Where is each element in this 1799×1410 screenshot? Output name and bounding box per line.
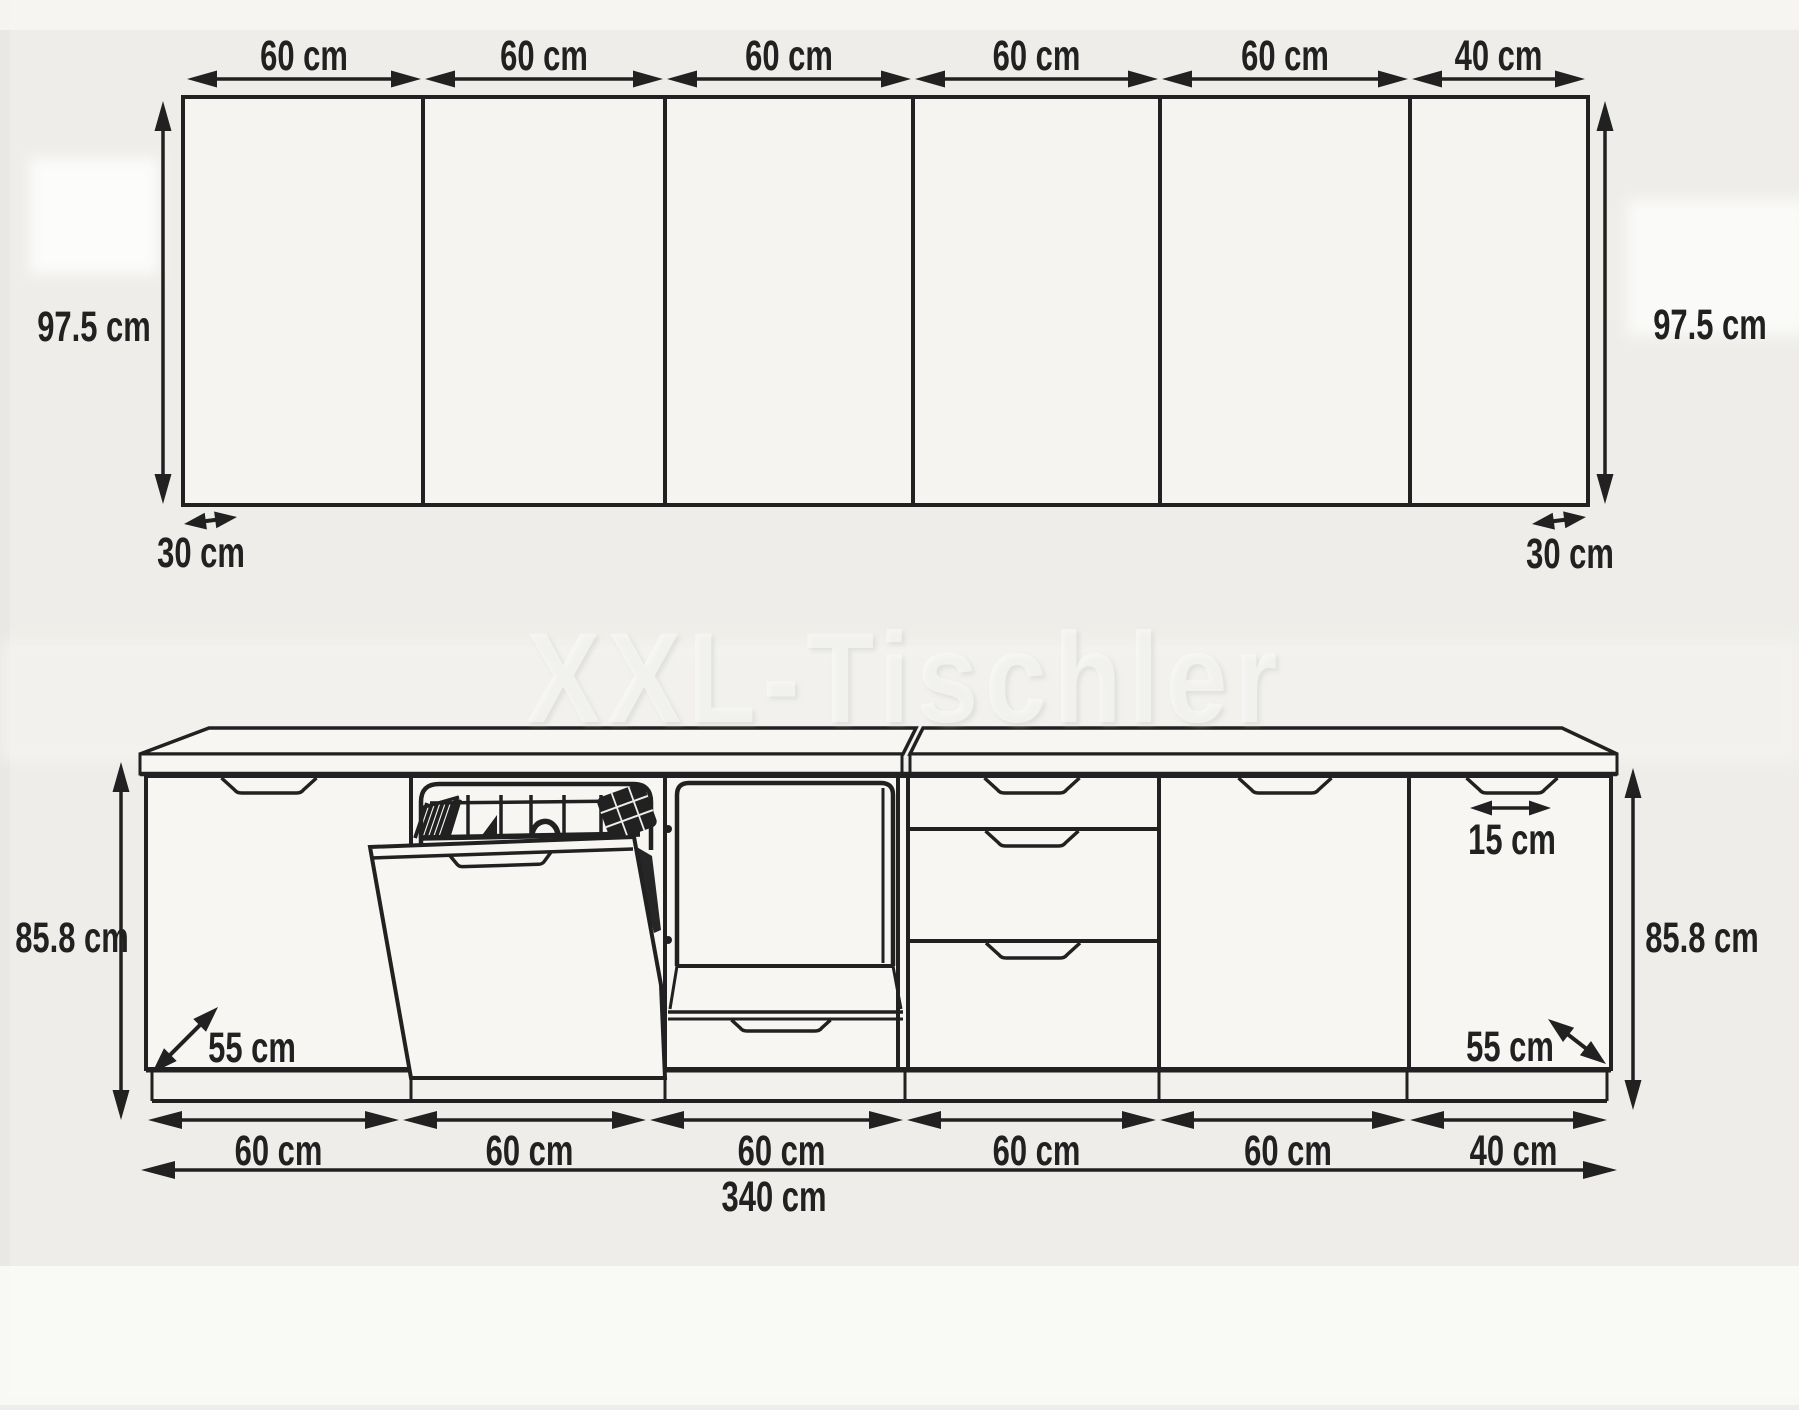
svg-text:40 cm: 40 cm bbox=[1470, 1126, 1558, 1174]
svg-text:15 cm: 15 cm bbox=[1468, 815, 1556, 863]
svg-text:30 cm: 30 cm bbox=[1526, 529, 1614, 577]
svg-text:85.8 cm: 85.8 cm bbox=[1645, 913, 1759, 961]
svg-text:60 cm: 60 cm bbox=[235, 1126, 323, 1174]
svg-text:60 cm: 60 cm bbox=[486, 1126, 574, 1174]
svg-text:97.5 cm: 97.5 cm bbox=[37, 302, 151, 350]
svg-text:55 cm: 55 cm bbox=[208, 1023, 296, 1071]
svg-text:55 cm: 55 cm bbox=[1466, 1022, 1554, 1070]
svg-text:340 cm: 340 cm bbox=[722, 1172, 827, 1220]
svg-text:60 cm: 60 cm bbox=[1241, 31, 1329, 79]
svg-text:60 cm: 60 cm bbox=[738, 1126, 826, 1174]
svg-text:60 cm: 60 cm bbox=[993, 1126, 1081, 1174]
svg-text:60 cm: 60 cm bbox=[745, 31, 833, 79]
svg-text:60 cm: 60 cm bbox=[993, 31, 1081, 79]
svg-text:XXL-Tischler: XXL-Tischler bbox=[526, 607, 1284, 750]
svg-text:60 cm: 60 cm bbox=[260, 31, 348, 79]
svg-text:60 cm: 60 cm bbox=[500, 31, 588, 79]
svg-text:97.5 cm: 97.5 cm bbox=[1653, 300, 1767, 348]
svg-text:60 cm: 60 cm bbox=[1244, 1126, 1332, 1174]
svg-text:85.8 cm: 85.8 cm bbox=[15, 913, 129, 961]
svg-text:40 cm: 40 cm bbox=[1455, 31, 1543, 79]
svg-text:30 cm: 30 cm bbox=[157, 528, 245, 576]
